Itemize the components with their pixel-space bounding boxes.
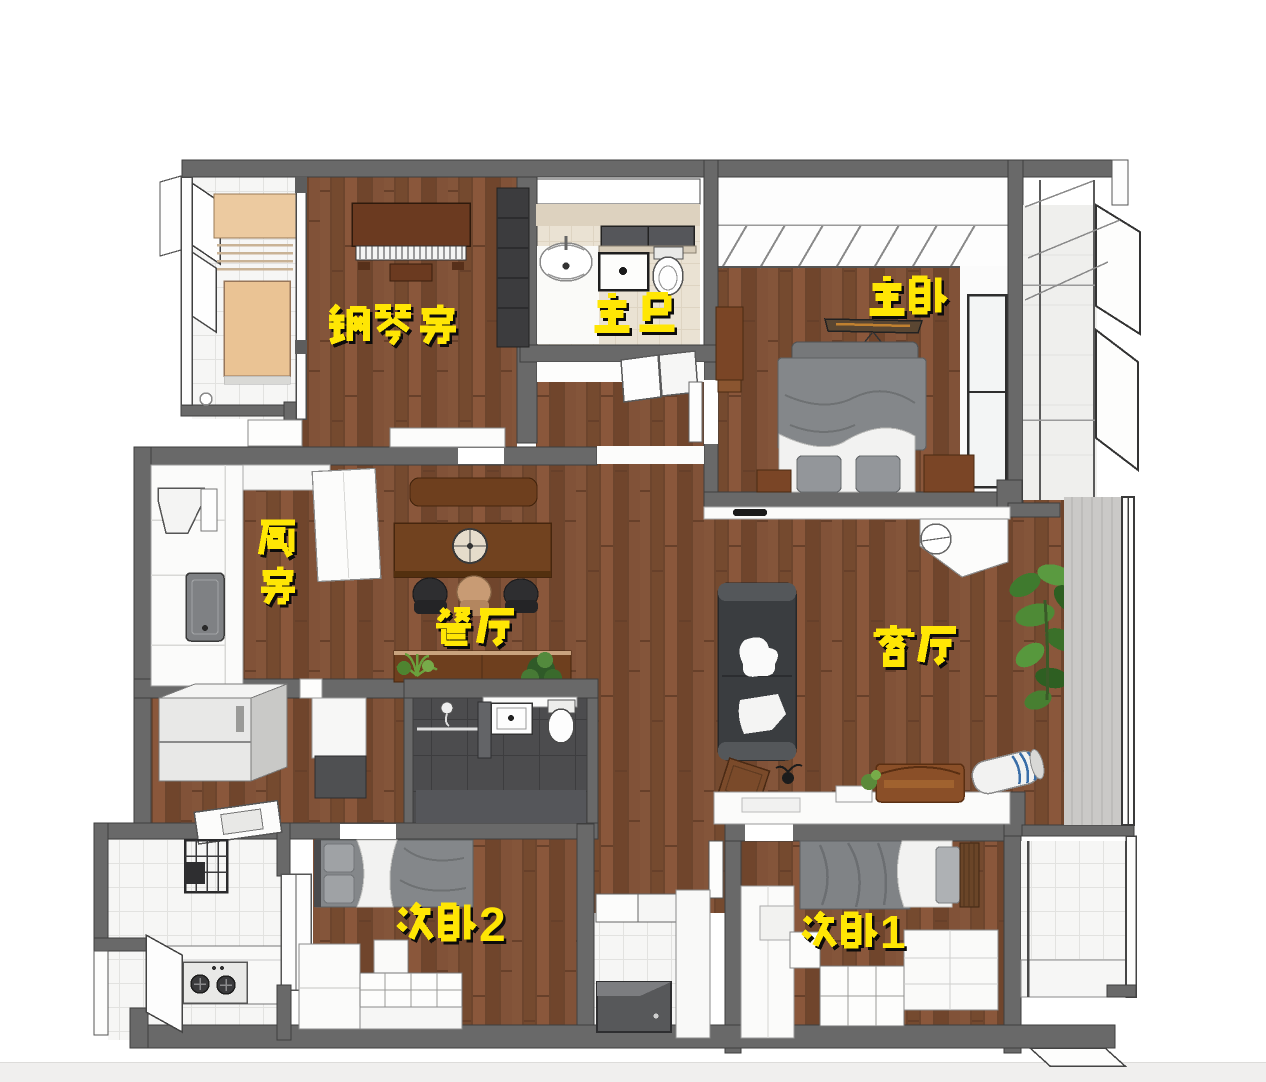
svg-text:1: 1 [880, 906, 906, 958]
svg-text:2: 2 [479, 899, 506, 952]
